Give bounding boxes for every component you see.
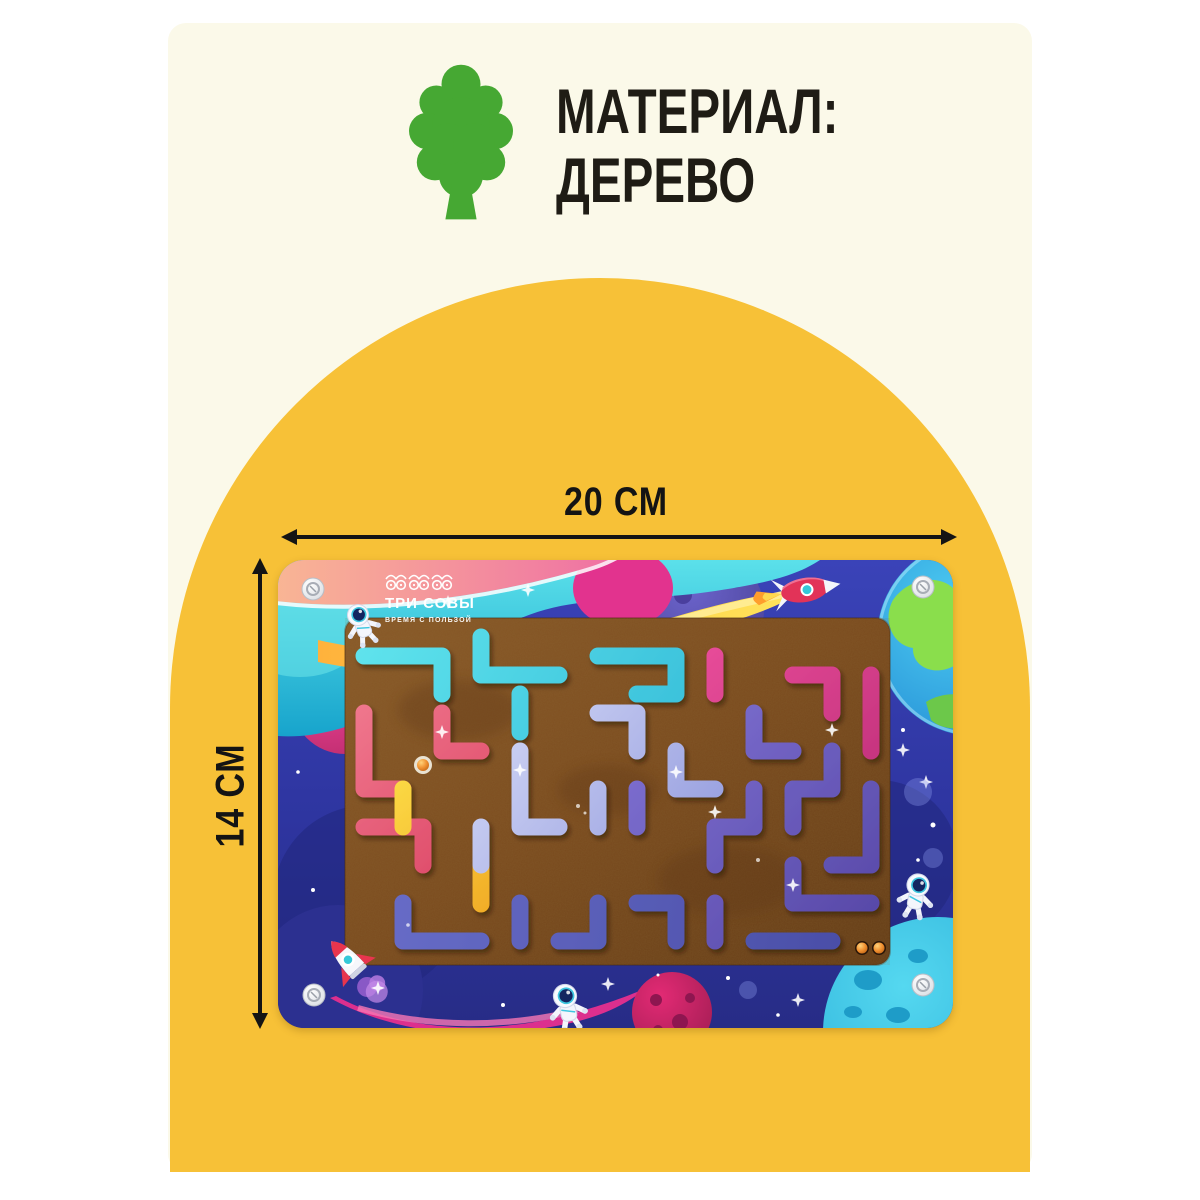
screw-icon [303, 984, 325, 1006]
brand-name: ТРИ СОВЫ [385, 595, 475, 612]
material-line2: ДЕРЕВО [556, 147, 838, 216]
screw-icon [912, 974, 934, 996]
product-card: МАТЕРИАЛ: ДЕРЕВО 20 СМ 14 СМ [0, 0, 1200, 1200]
maze-board-illustration: ТРИ СОВЫ ВРЕМЯ С ПОЛЬЗОЙ [278, 560, 953, 1028]
maze-board-photo: ТРИ СОВЫ ВРЕМЯ С ПОЛЬЗОЙ [278, 560, 953, 1028]
brand-tagline: ВРЕМЯ С ПОЛЬЗОЙ [385, 615, 472, 624]
width-dimension-label: 20 СМ [531, 480, 701, 525]
height-dimension-label: 14 СМ [209, 728, 254, 864]
tree-icon [396, 56, 526, 232]
material-label: МАТЕРИАЛ: ДЕРЕВО [556, 78, 838, 216]
screw-icon [302, 578, 324, 600]
material-line1: МАТЕРИАЛ: [556, 78, 838, 147]
material-callout: МАТЕРИАЛ: ДЕРЕВО [396, 56, 956, 246]
screw-icon [912, 576, 934, 598]
wooden-maze [326, 602, 908, 984]
